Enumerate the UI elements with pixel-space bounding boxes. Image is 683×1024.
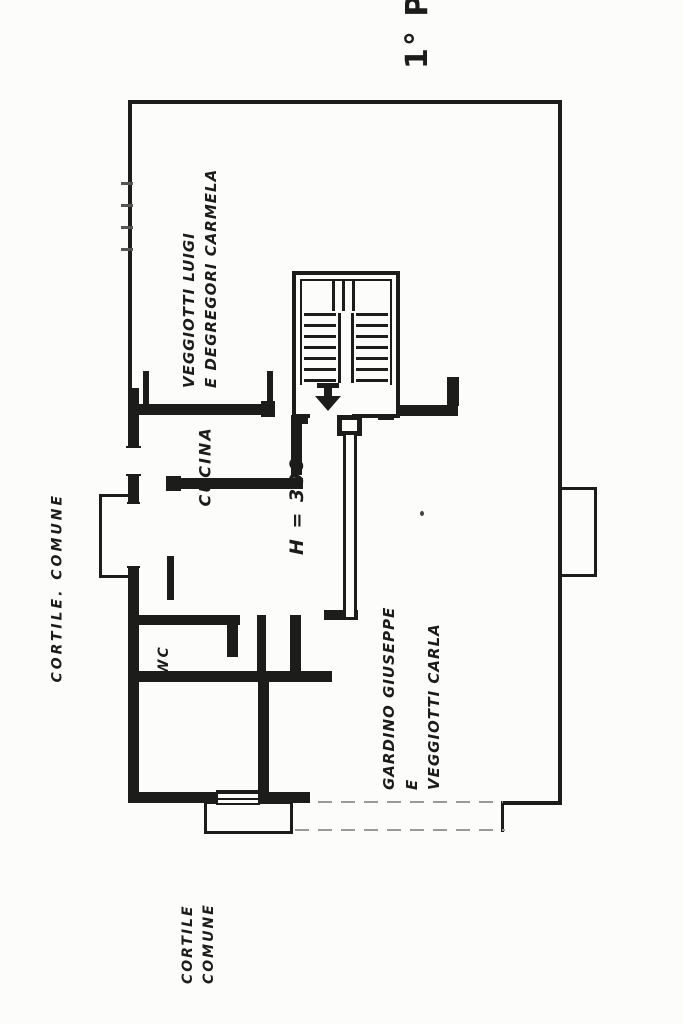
scan-speck [420,511,424,516]
owner-bottom-line2: E [401,540,424,790]
wall-hatch-mark [121,204,133,207]
courtyard-bottom-line1: CORTILE [178,872,199,984]
owner-label-top: VEGGIOTTI LUIGI E DEGREGORI CARMELA [177,138,223,388]
owner-bottom-line1: GARDINO GIUSEPPE [378,540,401,790]
wc-label: WC [155,645,173,675]
wall-hatch-mark [121,248,133,251]
window-left-wall [126,446,141,476]
floor-label-text: 1° P [395,0,440,69]
owner-top-line2: E DEGREGORI CARMELA [200,138,223,388]
balcony-right [559,487,597,577]
interior-door-stub [167,556,174,600]
building-wall-bottom-right [501,801,562,805]
owner-top-line1: VEGGIOTTI LUIGI [178,138,201,388]
boundary-faint-line-upper [295,801,503,803]
entry-wall-jamb [447,377,459,406]
balcony-left [99,494,138,578]
entry-wall-right [392,405,458,416]
corridor-wall [343,435,357,617]
wc-wall-right [227,615,238,657]
wc-label-text: WC [154,645,175,675]
stair-flight-divider [338,313,354,383]
closet-wall [257,615,266,678]
window-bottom-wall [216,790,260,805]
wall-hatch-mark [121,182,133,185]
owner-bottom-line3: VEGGIOTTI CARLA [423,540,446,790]
courtyard-bottom-label: CORTILE COMUNE [179,872,219,984]
kitchen-label: CUCINA [196,412,216,507]
balcony-bottom [204,801,293,834]
stair-direction-arrow-icon [312,383,346,415]
building-wall-top [128,100,562,104]
kitchen-label-text: CUCINA [194,412,218,507]
corridor-door-post [337,415,362,436]
courtyard-bottom-line2: COMUNE [199,872,220,984]
courtyard-left-label: CORTILE. COMUNE [49,488,67,683]
hall-wall-right [290,615,301,678]
arrow-head [315,396,341,411]
courtyard-left-text: CORTILE. COMUNE [47,488,68,683]
wall-stub [267,371,273,404]
ceiling-height-text: H = 300 [283,435,312,555]
stair-treads-left [304,313,336,383]
owner-label-bottom: GARDINO GIUSEPPE E VEGGIOTTI CARLA [379,540,445,790]
stair-treads-right [356,313,388,383]
wc-wall-top [136,615,240,625]
stair-window-mullions [332,281,362,311]
wall-stub [143,371,149,404]
door-jamb [166,476,181,491]
floor-label: 1° P [395,0,440,69]
building-wall-step [501,801,504,832]
wall-hatch-mark [121,226,133,229]
floor-plan-page: 1° P VEGGIOTTI LUIGI E DEGREGORI CARMELA… [0,0,683,1024]
stairwell [292,271,400,418]
ceiling-height-label: H = 300 [285,435,309,555]
boundary-faint-line-lower [295,829,505,831]
room-wall-right-lower [258,682,269,795]
building-wall-left-upper [128,100,132,390]
building-wall-right [558,100,562,805]
